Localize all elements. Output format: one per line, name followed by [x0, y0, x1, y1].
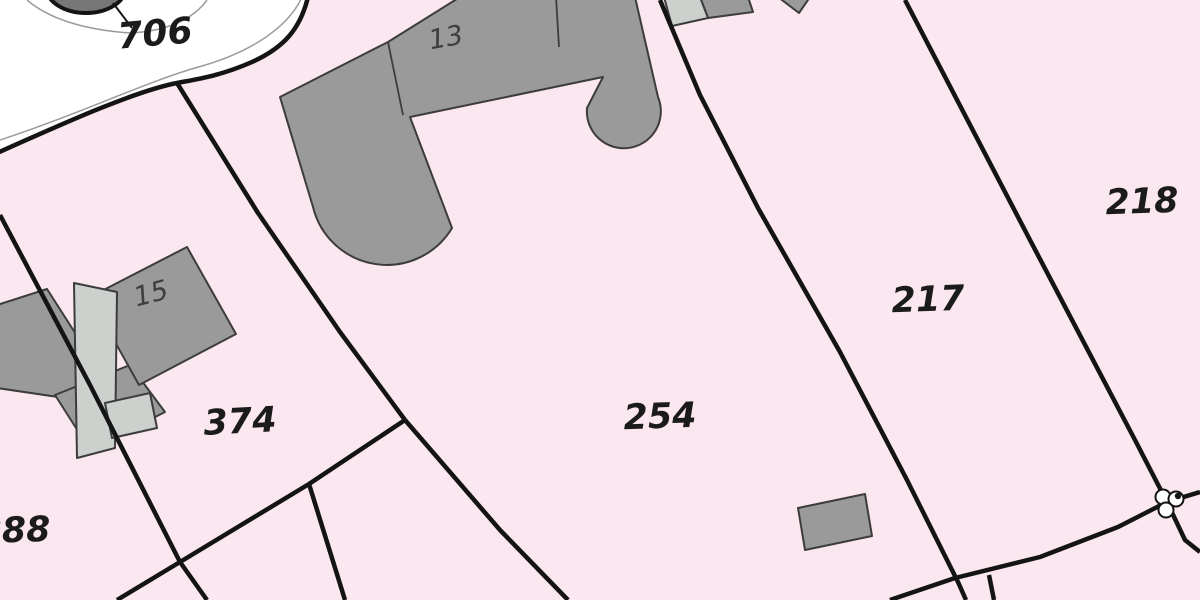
parcel-label-888: 888 — [0, 510, 51, 553]
boundary-marker-circle-3 — [1159, 503, 1174, 518]
cadastral-map: 7068883742542172181315 — [0, 0, 1200, 600]
cadastral-map-viewport[interactable]: 7068883742542172181315 — [0, 0, 1200, 600]
parcel-label-706: 706 — [116, 10, 194, 57]
parcel-label-218: 218 — [1105, 181, 1179, 224]
parcel-label-374: 374 — [202, 400, 277, 444]
house-number-13: 13 — [426, 20, 465, 56]
boundary-marker-dot — [1175, 493, 1181, 499]
parcel-label-254: 254 — [623, 396, 697, 439]
parcel-label-217: 217 — [891, 279, 966, 322]
